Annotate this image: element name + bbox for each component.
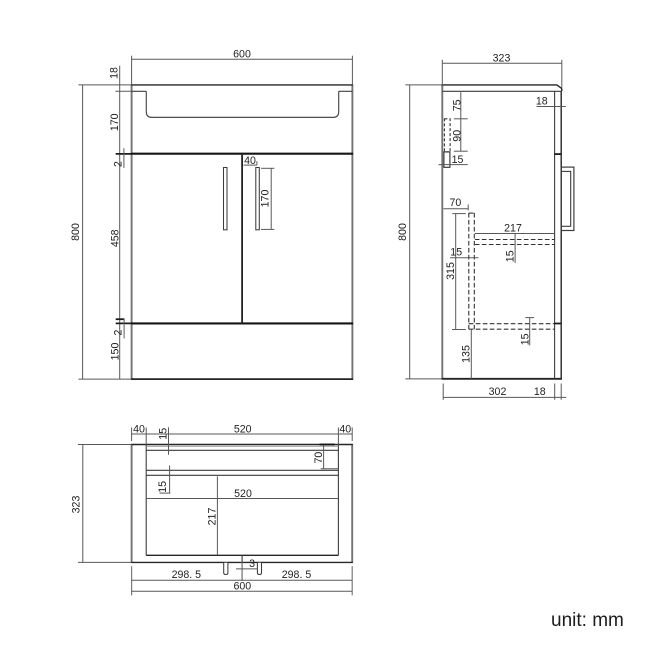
svg-text:unit: mm: unit: mm bbox=[551, 610, 624, 631]
svg-text:298. 5: 298. 5 bbox=[282, 569, 312, 581]
svg-text:15: 15 bbox=[519, 333, 531, 345]
svg-text:600: 600 bbox=[233, 581, 251, 593]
svg-text:458: 458 bbox=[110, 229, 122, 247]
svg-text:520: 520 bbox=[234, 423, 252, 435]
svg-text:90: 90 bbox=[451, 130, 463, 142]
svg-text:18: 18 bbox=[534, 386, 546, 398]
svg-text:135: 135 bbox=[461, 345, 473, 363]
svg-text:600: 600 bbox=[233, 49, 251, 61]
svg-text:800: 800 bbox=[70, 223, 82, 241]
svg-text:70: 70 bbox=[450, 197, 462, 209]
svg-text:800: 800 bbox=[397, 223, 409, 241]
svg-text:2: 2 bbox=[113, 329, 125, 335]
svg-text:18: 18 bbox=[536, 96, 548, 108]
svg-text:15: 15 bbox=[450, 247, 462, 259]
svg-text:70: 70 bbox=[313, 452, 325, 464]
svg-text:40: 40 bbox=[339, 423, 351, 435]
svg-text:520: 520 bbox=[234, 488, 252, 500]
svg-text:3: 3 bbox=[249, 558, 255, 570]
svg-text:170: 170 bbox=[109, 113, 121, 131]
svg-text:150: 150 bbox=[109, 343, 121, 361]
svg-text:217: 217 bbox=[504, 223, 522, 235]
svg-text:75: 75 bbox=[451, 99, 463, 111]
svg-text:40: 40 bbox=[133, 423, 145, 435]
svg-text:18: 18 bbox=[108, 67, 120, 79]
svg-text:15: 15 bbox=[157, 428, 169, 440]
svg-text:323: 323 bbox=[70, 496, 82, 514]
svg-text:2: 2 bbox=[113, 161, 125, 167]
svg-text:170: 170 bbox=[260, 190, 272, 208]
svg-text:15: 15 bbox=[157, 481, 169, 493]
svg-text:298. 5: 298. 5 bbox=[172, 569, 202, 581]
svg-text:217: 217 bbox=[207, 508, 219, 526]
svg-text:15: 15 bbox=[452, 154, 464, 166]
svg-text:315: 315 bbox=[445, 262, 457, 280]
svg-text:323: 323 bbox=[493, 53, 511, 65]
svg-text:302: 302 bbox=[489, 386, 507, 398]
svg-text:15: 15 bbox=[505, 250, 517, 262]
